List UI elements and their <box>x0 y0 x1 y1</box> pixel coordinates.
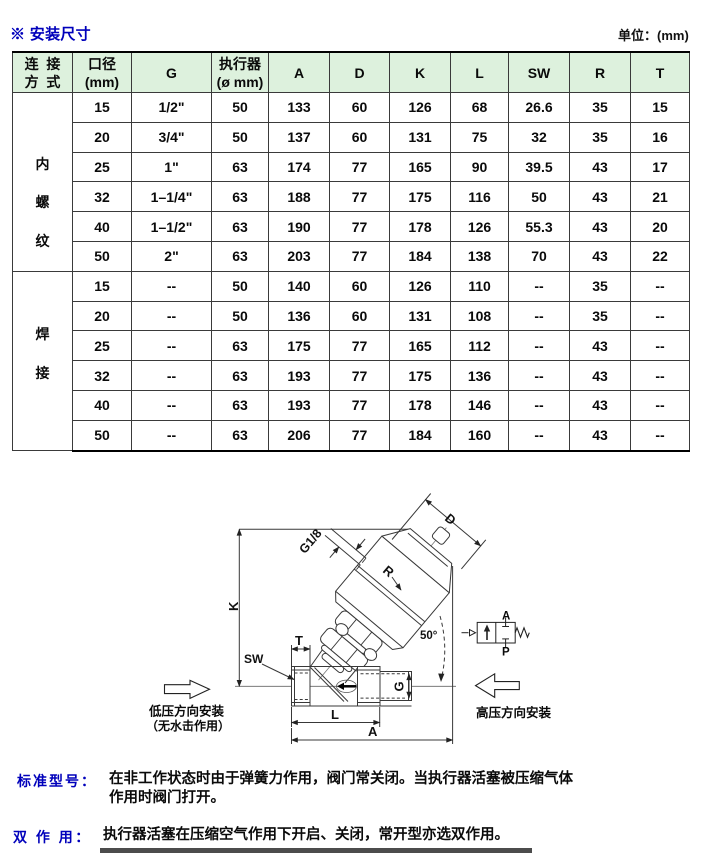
svg-text:G1/8: G1/8 <box>296 526 324 556</box>
svg-text:50°: 50° <box>420 630 438 642</box>
svg-text:SW: SW <box>244 652 264 666</box>
svg-text:A: A <box>368 724 378 739</box>
svg-text:T: T <box>295 633 303 648</box>
svg-text:K: K <box>226 601 241 611</box>
svg-text:A: A <box>502 611 510 623</box>
svg-text:G: G <box>392 681 407 691</box>
svg-text:（无水击作用）: （无水击作用） <box>146 718 230 733</box>
svg-text:高压方向安装: 高压方向安装 <box>476 705 552 720</box>
svg-text:P: P <box>502 647 510 659</box>
svg-text:L: L <box>331 707 339 722</box>
svg-text:低压方向安装: 低压方向安装 <box>148 704 225 719</box>
